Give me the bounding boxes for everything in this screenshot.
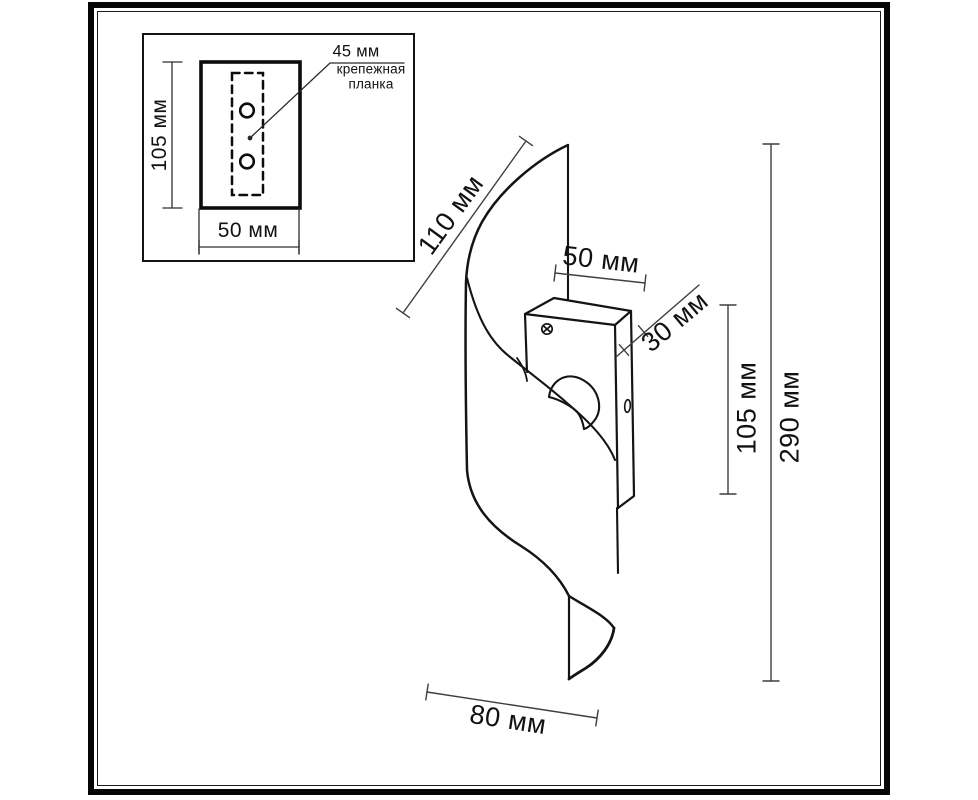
inset-callout-text: крепежная планка	[337, 62, 406, 91]
inset-dim-width-label: 50 мм	[218, 219, 279, 243]
inset-callout-line2: планка	[337, 77, 406, 92]
inset-callout-line1: крепежная	[337, 62, 406, 77]
inset-dim-height-label: 105 мм	[148, 99, 172, 172]
dim-105-label: 105 мм	[732, 362, 763, 455]
technical-drawing-page: 105 мм 50 мм 45 мм крепежная планка 110 …	[0, 0, 978, 800]
dim-290-label: 290 мм	[775, 371, 806, 464]
inset-callout-value-label: 45 мм	[332, 43, 379, 62]
